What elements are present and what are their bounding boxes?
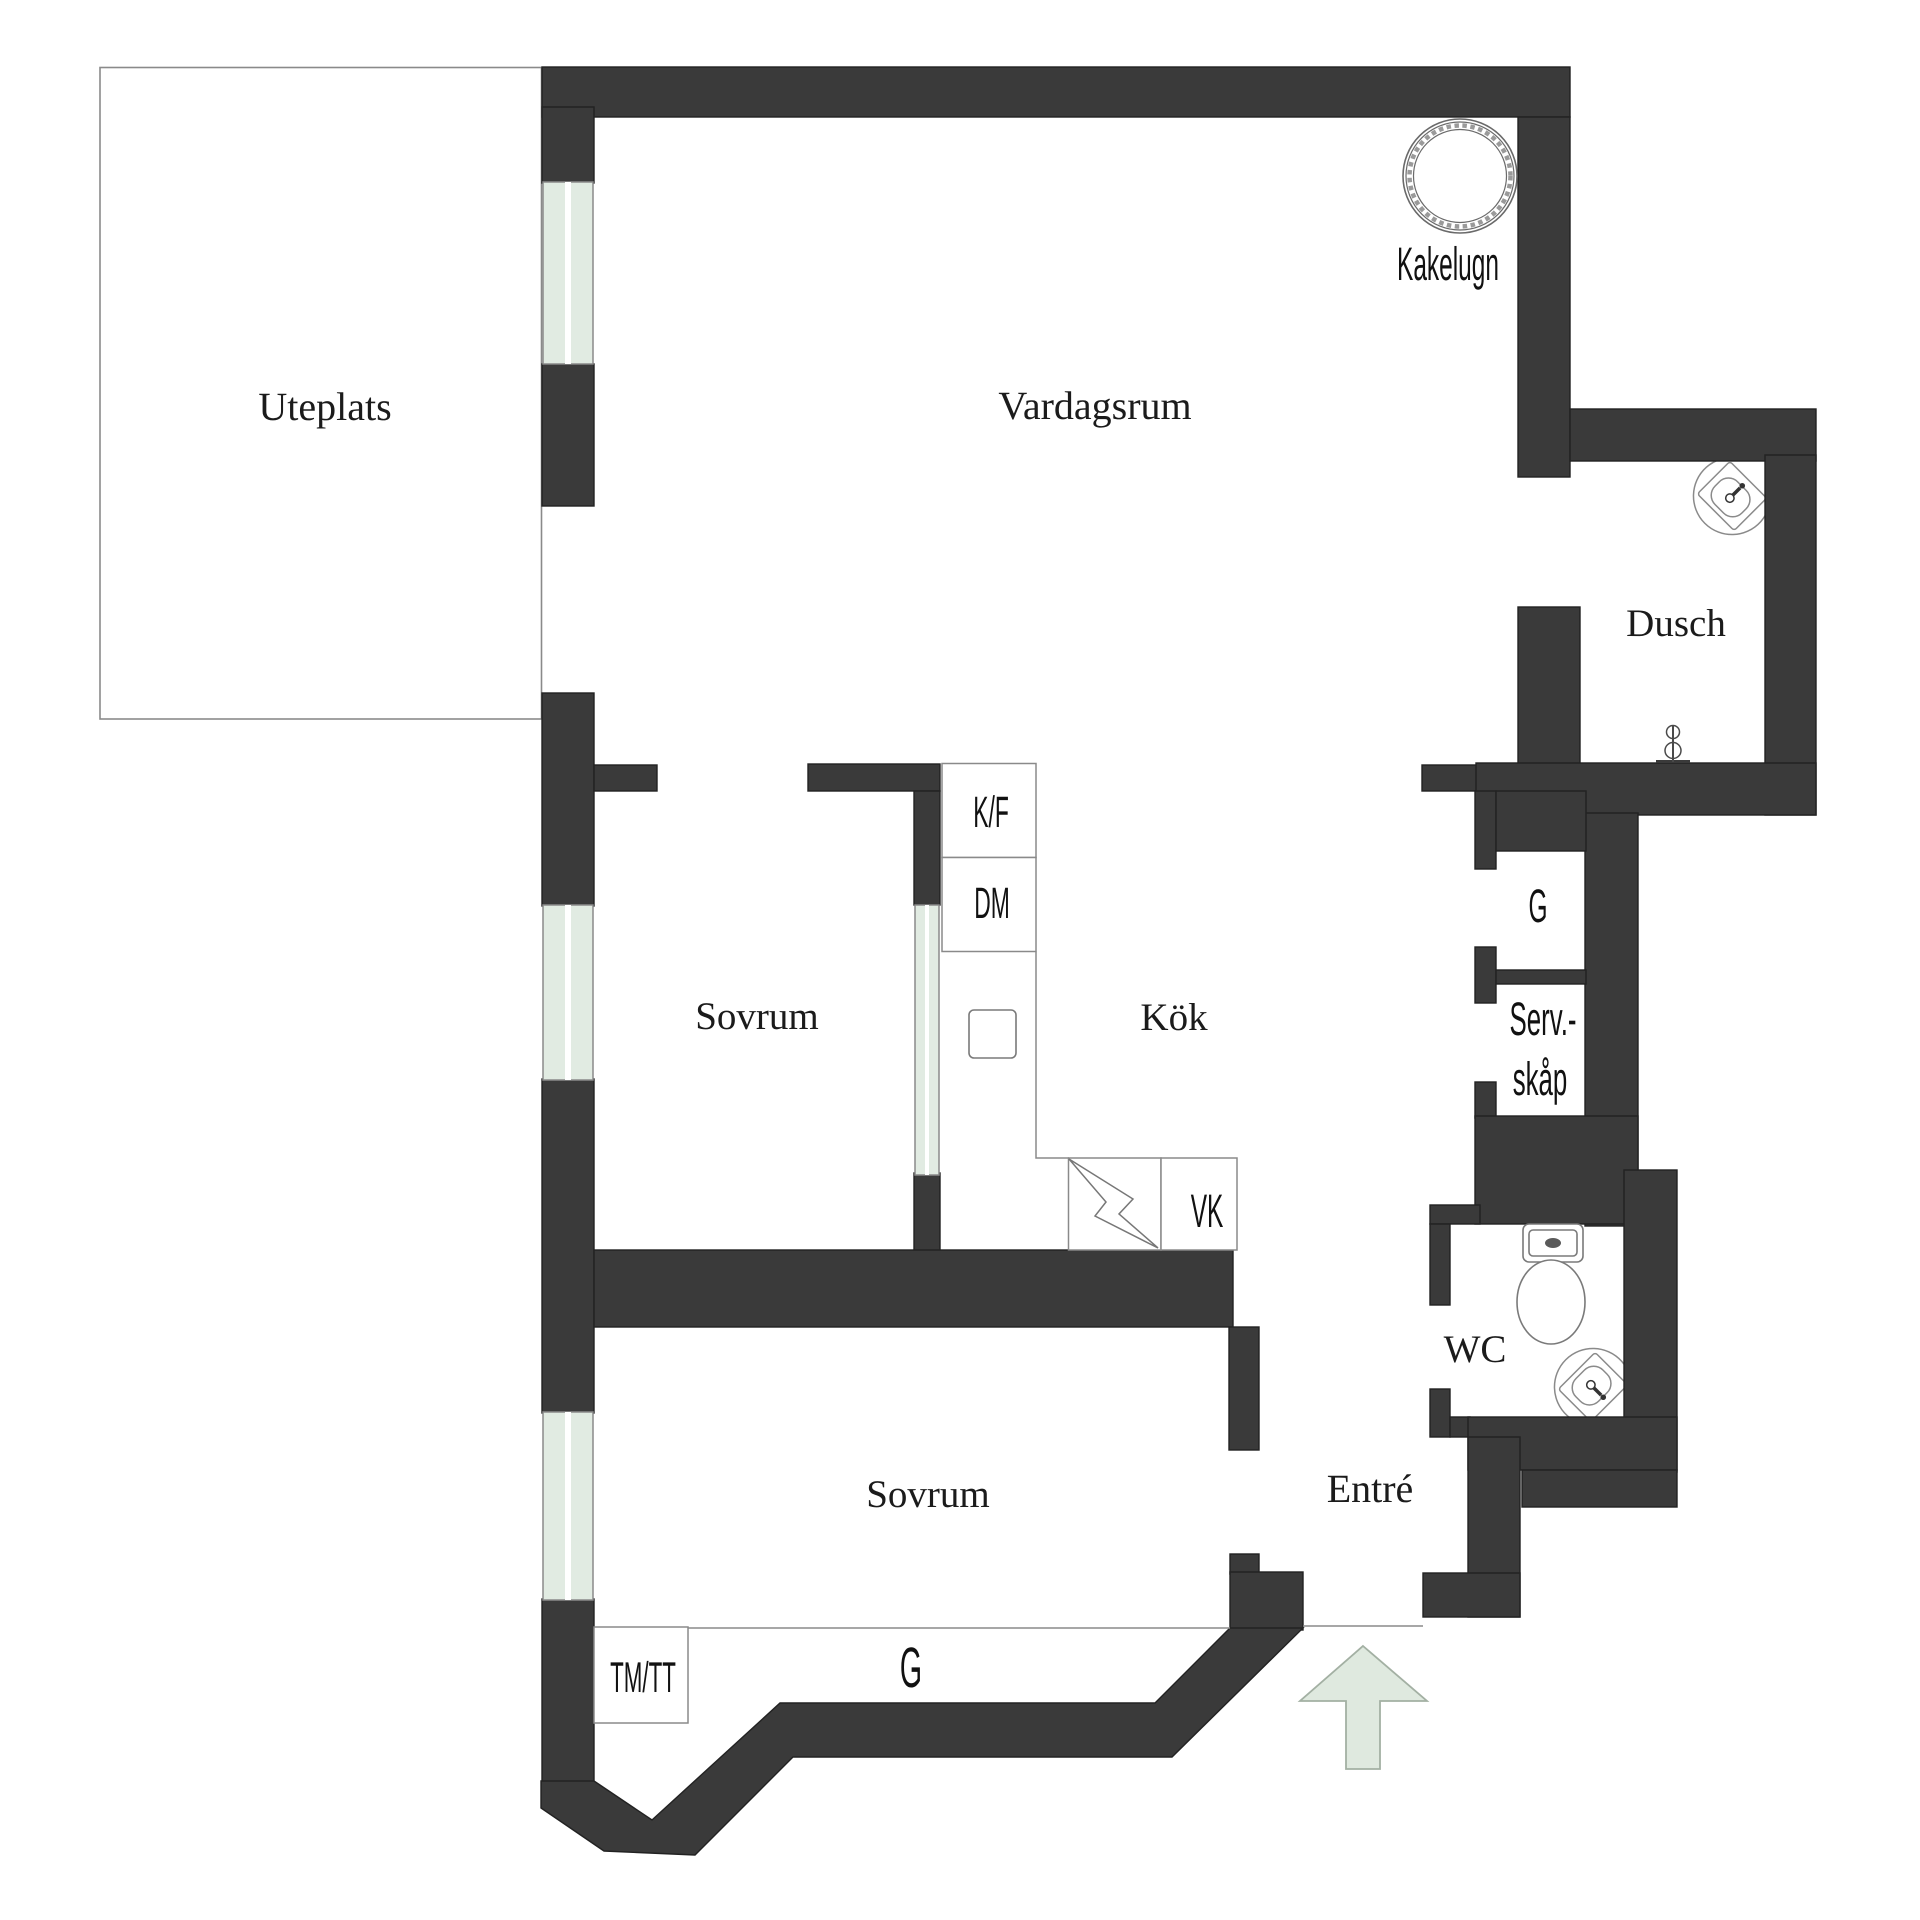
svg-text:WC: WC	[1444, 1328, 1507, 1371]
svg-text:skåp: skåp	[1513, 1052, 1568, 1105]
svg-text:Sovrum: Sovrum	[866, 1473, 990, 1516]
svg-text:Vardagsrum: Vardagsrum	[998, 383, 1191, 428]
svg-text:Kök: Kök	[1140, 996, 1208, 1039]
svg-text:Entré: Entré	[1327, 1466, 1414, 1511]
svg-text:G: G	[1528, 879, 1547, 932]
svg-text:G: G	[900, 1636, 922, 1700]
svg-text:Uteplats: Uteplats	[258, 384, 391, 429]
svg-text:Dusch: Dusch	[1626, 602, 1726, 645]
svg-text:Serv.-: Serv.-	[1509, 992, 1576, 1045]
svg-text:Sovrum: Sovrum	[695, 995, 819, 1038]
svg-text:VK: VK	[1191, 1184, 1224, 1237]
svg-text:TM/TT: TM/TT	[610, 1654, 676, 1702]
svg-text:K/F: K/F	[973, 788, 1009, 837]
svg-text:Kakelugn: Kakelugn	[1397, 237, 1499, 290]
svg-text:DM: DM	[974, 879, 1010, 928]
